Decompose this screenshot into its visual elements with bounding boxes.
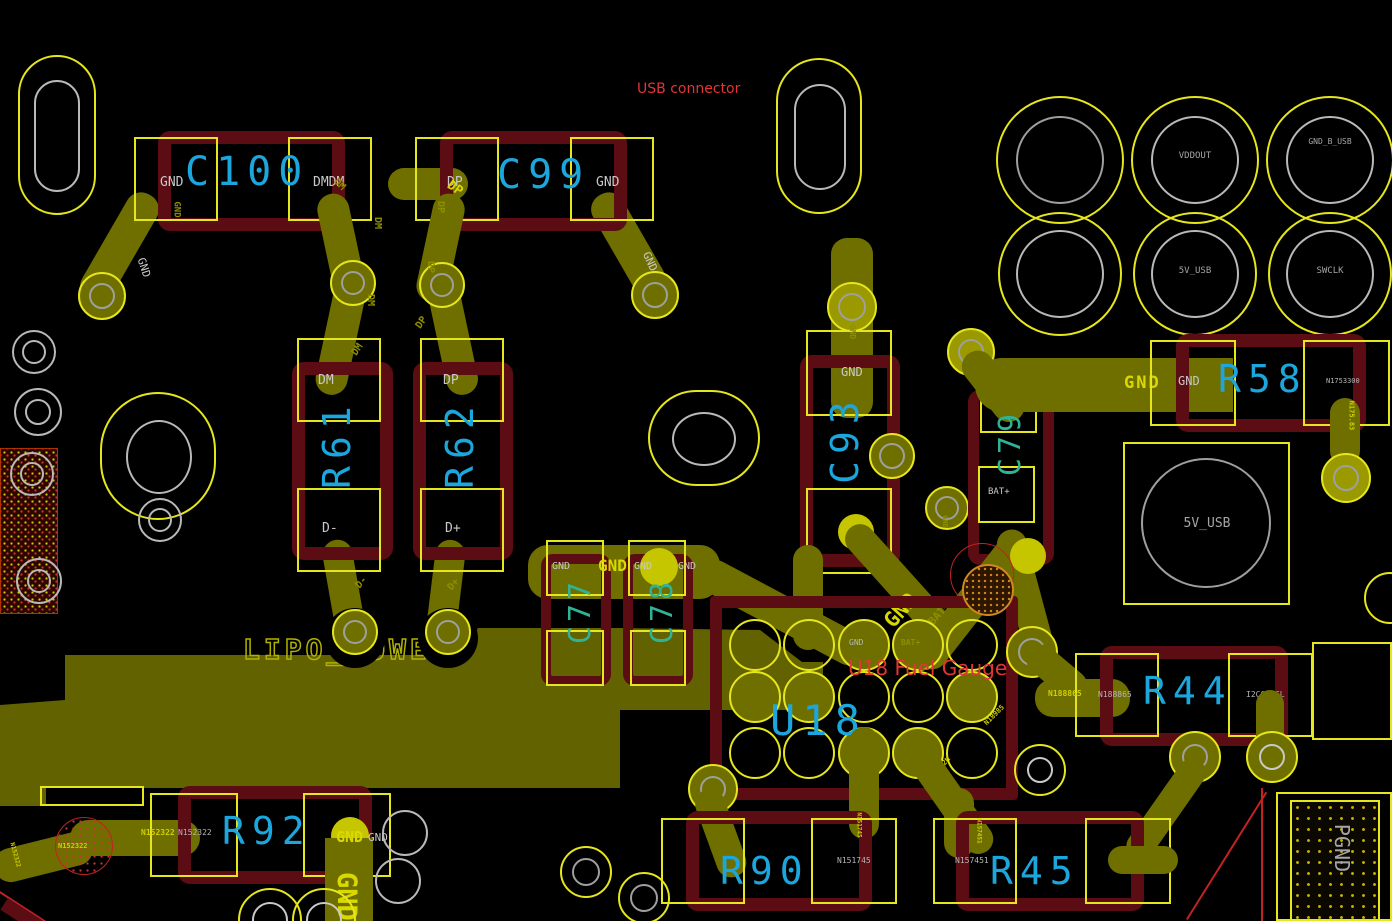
via[interactable]: [78, 272, 126, 320]
designator-r62: R62: [441, 399, 479, 489]
net-label: N175.83: [1347, 401, 1354, 431]
ring-edge: [1364, 572, 1392, 624]
hole-ring: [375, 858, 421, 904]
pad-label: N151745: [837, 857, 871, 865]
testpoint-hole: [1286, 116, 1374, 204]
pad-r62-bottom[interactable]: [420, 488, 504, 572]
pad-label: GND: [678, 562, 696, 572]
pcb-canvas: LIPO_POWER USB connector VDDOUT GND_B_US…: [0, 0, 1392, 921]
pad-label: N1753300: [1326, 378, 1360, 385]
via[interactable]: [618, 872, 670, 921]
net-label-gnd: GND: [336, 830, 363, 845]
pour-outline: [40, 786, 144, 806]
via-filled[interactable]: [1010, 538, 1046, 574]
via[interactable]: [1321, 453, 1371, 503]
testpoint-label-5v-usb: 5V_USB: [1179, 267, 1212, 276]
testpoint-label-usb-shield: GND_B_USB: [1308, 138, 1351, 146]
u18-pad[interactable]: [946, 727, 998, 779]
pad-label: GND: [634, 562, 652, 572]
net-label-gnd: GND: [941, 515, 948, 528]
pad-label: GND: [596, 176, 619, 189]
board-edge-line: [1261, 788, 1263, 921]
designator-c99: C99: [497, 155, 590, 195]
testpoint-label-vddout: VDDOUT: [1179, 152, 1212, 161]
pad-r61-bottom[interactable]: [297, 488, 381, 572]
annotation-usb-connector: USB connector: [637, 82, 740, 96]
designator-r45: R45: [990, 852, 1080, 890]
pad-label: GND: [552, 562, 570, 572]
pad-label: DP: [443, 374, 459, 387]
pad-label: D+: [445, 522, 461, 535]
u18-pad[interactable]: [783, 619, 835, 671]
net-label: N151745: [856, 812, 862, 837]
board-edge-line: [1186, 792, 1267, 920]
designator-r90: R90: [720, 852, 810, 890]
testpoint-hole: [1016, 230, 1104, 318]
hole-ring: [148, 508, 172, 532]
pad-outline-edge[interactable]: [1312, 642, 1392, 740]
designator-c93: C93: [826, 394, 864, 484]
trace[interactable]: [1108, 846, 1178, 874]
net-label-dm: DM: [372, 217, 382, 229]
pad-label: GND: [849, 639, 863, 647]
designator-r44: R44: [1143, 672, 1233, 710]
pad-label: DM: [318, 374, 334, 387]
designator-r61: R61: [318, 399, 356, 489]
via[interactable]: [560, 846, 612, 898]
designator-c77: C77: [566, 578, 596, 644]
net-label-gnd: GND: [172, 201, 181, 217]
pad-label: GND: [841, 366, 863, 378]
net-label-gnd: GND: [598, 558, 627, 574]
pad-label: N157451: [955, 857, 989, 865]
designator-r92: R92: [222, 812, 312, 850]
via[interactable]: [425, 609, 471, 655]
pad-label: GND: [1178, 375, 1200, 387]
hole-ring: [27, 569, 51, 593]
net-label-gnd: GND: [136, 256, 153, 278]
hole-ring: [382, 810, 428, 856]
net-label-dp: DP: [425, 261, 435, 273]
designator-c100: C100: [185, 152, 309, 192]
pad-label-5v-usb: 5V_USB: [1184, 517, 1231, 530]
hatched-via: [962, 564, 1014, 616]
net-label: N152322: [141, 829, 175, 837]
net-label-dm: DM: [365, 294, 375, 306]
pad-label: BAT+: [988, 488, 1010, 497]
testpoint-hole: [1016, 116, 1104, 204]
designator-c79: C79: [996, 410, 1026, 476]
pad-label: N188865: [1098, 691, 1132, 699]
usb-shield-hole: [126, 420, 192, 494]
hole-ring: [20, 462, 44, 486]
hole-ring: [22, 340, 46, 364]
pad-label: BAT+: [901, 639, 920, 647]
annotation-fuel-gauge: U18 Fuel Gauge: [848, 658, 1007, 678]
testpoint-label-swclk: SWCLK: [1316, 267, 1343, 276]
via[interactable]: [1246, 731, 1298, 783]
usb-shield-hole: [672, 412, 736, 466]
designator-r58: R58: [1218, 360, 1308, 398]
via[interactable]: [332, 609, 378, 655]
u18-pad[interactable]: [729, 619, 781, 671]
hole-ring: [25, 399, 51, 425]
pad-label: D-: [322, 522, 338, 535]
net-label-dp: DP: [435, 201, 445, 213]
net-label: N152322: [58, 843, 88, 850]
via[interactable]: [1014, 744, 1066, 796]
net-label-gnd: GND: [848, 325, 856, 339]
net-label: N188865: [1048, 690, 1082, 698]
usb-shield-hole: [34, 80, 80, 192]
pad-label-pgnd: PGND: [1332, 824, 1352, 872]
net-label: N157451: [976, 818, 982, 843]
pad-label: GND: [160, 176, 183, 189]
usb-shield-hole: [794, 84, 846, 190]
designator-c78: C78: [648, 578, 678, 644]
keepout-band: [0, 898, 78, 921]
pad-label: N152322: [178, 829, 212, 837]
via[interactable]: [631, 271, 679, 319]
via[interactable]: [869, 433, 915, 479]
net-label-dp: DP: [414, 315, 429, 331]
